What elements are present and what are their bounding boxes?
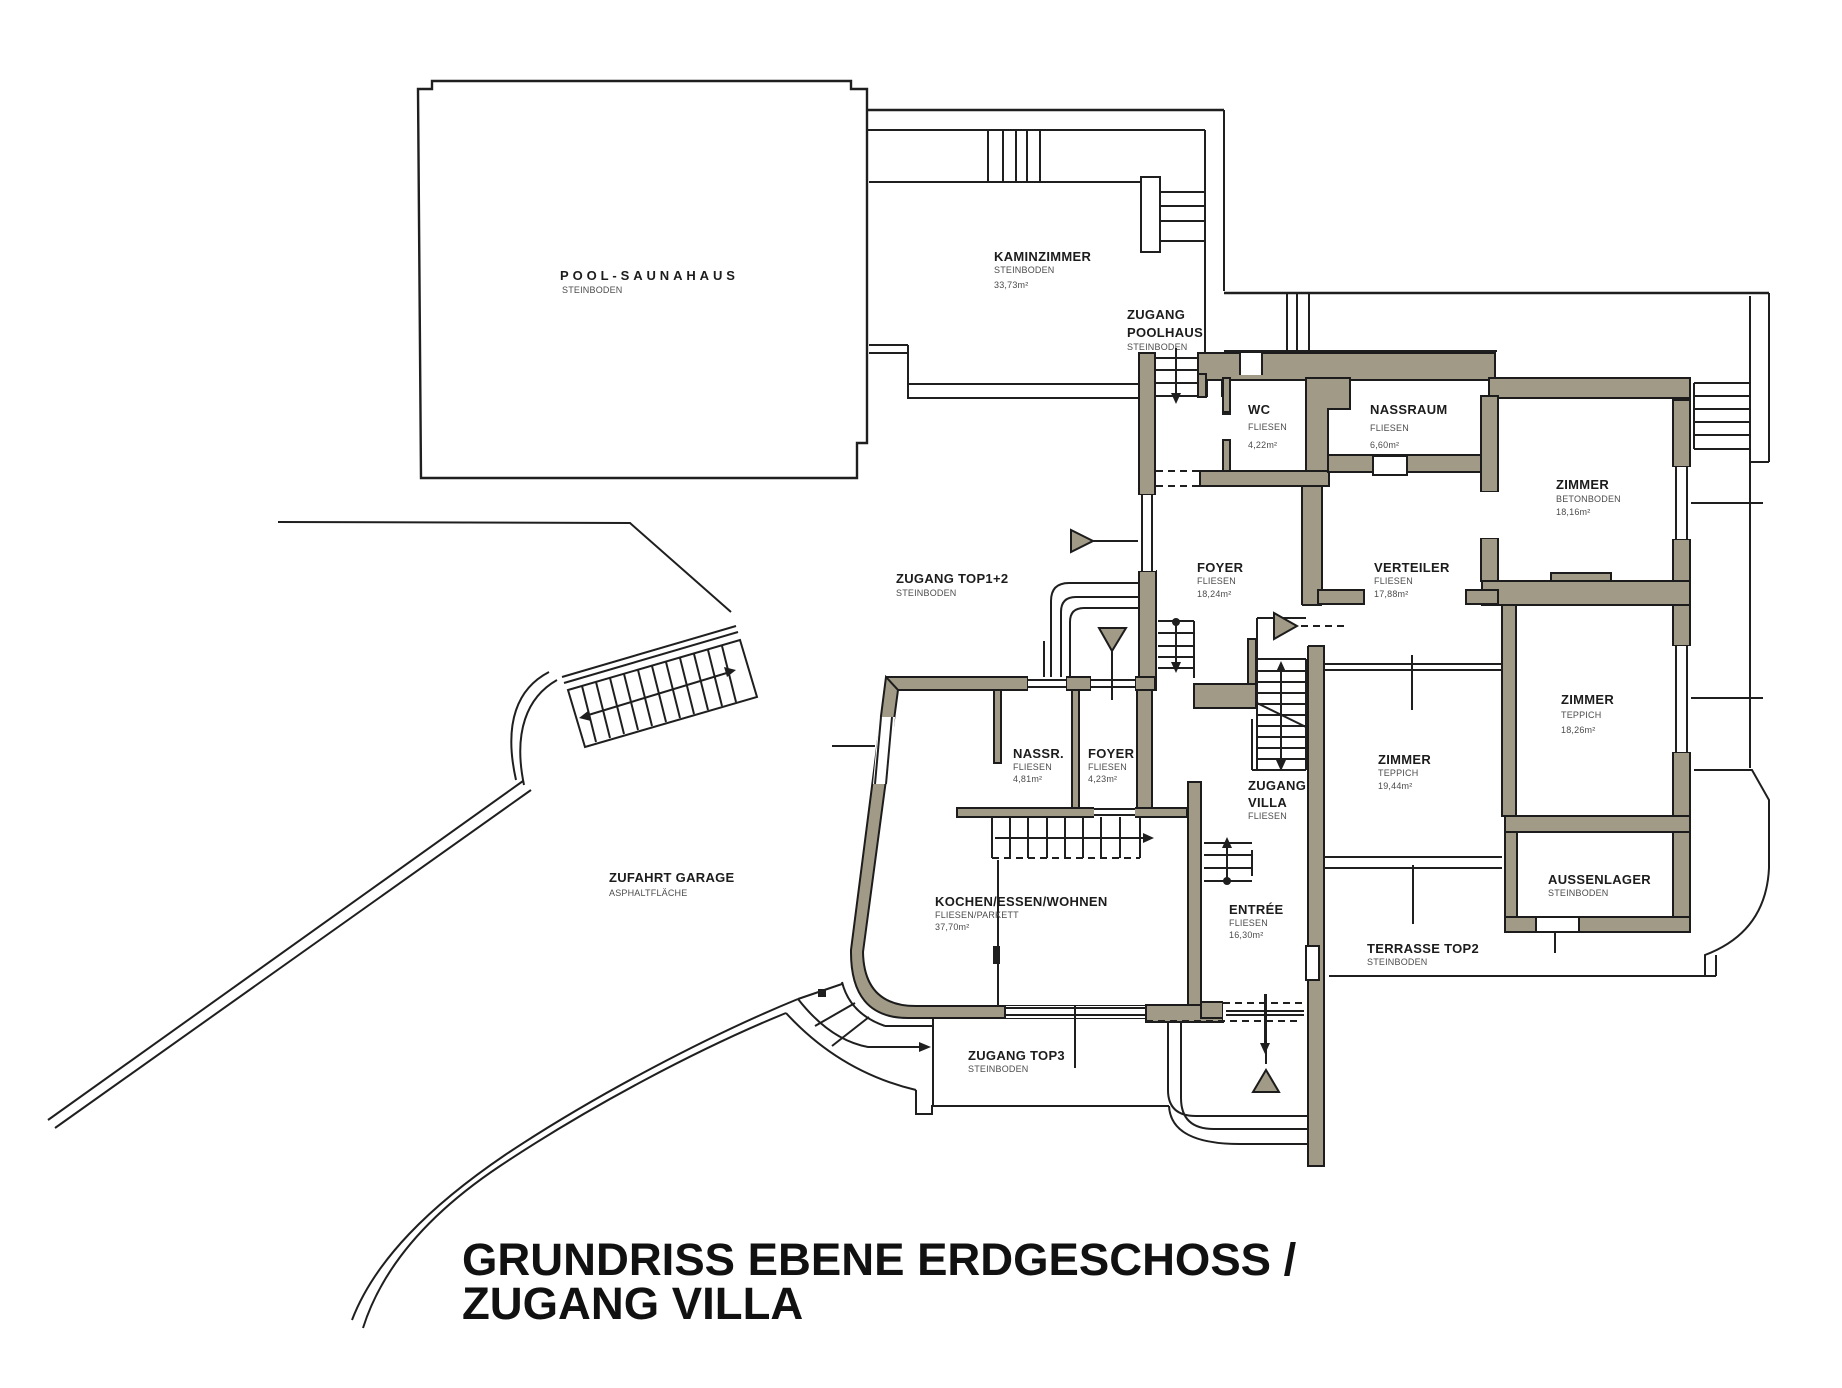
- svg-text:TERRASSE TOP2: TERRASSE TOP2: [1367, 941, 1479, 956]
- svg-text:FOYER: FOYER: [1088, 746, 1135, 761]
- svg-text:ZIMMER: ZIMMER: [1561, 692, 1614, 707]
- svg-text:STEINBODEN: STEINBODEN: [896, 588, 957, 598]
- svg-text:POOLHAUS: POOLHAUS: [1127, 325, 1203, 340]
- svg-text:18,26m²: 18,26m²: [1561, 725, 1595, 735]
- svg-text:4,22m²: 4,22m²: [1248, 440, 1277, 450]
- svg-text:WC: WC: [1248, 402, 1271, 417]
- svg-text:6,60m²: 6,60m²: [1370, 440, 1399, 450]
- svg-text:4,23m²: 4,23m²: [1088, 774, 1117, 784]
- svg-text:ZUGANG TOP3: ZUGANG TOP3: [968, 1048, 1065, 1063]
- svg-text:STEINBODEN: STEINBODEN: [968, 1064, 1029, 1074]
- svg-text:4,81m²: 4,81m²: [1013, 774, 1042, 784]
- svg-text:ASPHALTFLÄCHE: ASPHALTFLÄCHE: [609, 888, 687, 898]
- svg-text:ZUGANG: ZUGANG: [1127, 307, 1185, 322]
- svg-text:FLIESEN/PARKETT: FLIESEN/PARKETT: [935, 910, 1019, 920]
- svg-text:33,73m²: 33,73m²: [994, 280, 1028, 290]
- svg-text:FLIESEN: FLIESEN: [1013, 762, 1052, 772]
- svg-text:19,44m²: 19,44m²: [1378, 781, 1412, 791]
- svg-text:ZUFAHRT GARAGE: ZUFAHRT GARAGE: [609, 870, 735, 885]
- svg-text:FLIESEN: FLIESEN: [1088, 762, 1127, 772]
- svg-text:ZUGANG VILLA: ZUGANG VILLA: [462, 1278, 803, 1329]
- svg-text:17,88m²: 17,88m²: [1374, 589, 1408, 599]
- svg-text:FLIESEN: FLIESEN: [1248, 422, 1287, 432]
- svg-text:VILLA: VILLA: [1248, 795, 1287, 810]
- svg-text:FOYER: FOYER: [1197, 560, 1244, 575]
- svg-text:FLIESEN: FLIESEN: [1229, 918, 1268, 928]
- svg-text:TEPPICH: TEPPICH: [1378, 768, 1418, 778]
- svg-text:STEINBODEN: STEINBODEN: [1127, 342, 1188, 352]
- svg-text:18,24m²: 18,24m²: [1197, 589, 1231, 599]
- svg-text:37,70m²: 37,70m²: [935, 922, 969, 932]
- svg-text:KOCHEN/ESSEN/WOHNEN: KOCHEN/ESSEN/WOHNEN: [935, 894, 1108, 909]
- svg-text:FLIESEN: FLIESEN: [1370, 423, 1409, 433]
- svg-text:TEPPICH: TEPPICH: [1561, 710, 1601, 720]
- svg-text:ZIMMER: ZIMMER: [1378, 752, 1431, 767]
- svg-text:18,16m²: 18,16m²: [1556, 507, 1590, 517]
- svg-text:BETONBODEN: BETONBODEN: [1556, 494, 1621, 504]
- svg-text:VERTEILER: VERTEILER: [1374, 560, 1450, 575]
- svg-text:NASSR.: NASSR.: [1013, 746, 1064, 761]
- svg-text:AUSSENLAGER: AUSSENLAGER: [1548, 872, 1651, 887]
- svg-text:FLIESEN: FLIESEN: [1374, 576, 1413, 586]
- svg-text:KAMINZIMMER: KAMINZIMMER: [994, 249, 1091, 264]
- svg-text:STEINBODEN: STEINBODEN: [562, 285, 623, 295]
- svg-text:FLIESEN: FLIESEN: [1197, 576, 1236, 586]
- svg-text:STEINBODEN: STEINBODEN: [994, 265, 1055, 275]
- svg-text:ZUGANG: ZUGANG: [1248, 778, 1306, 793]
- svg-text:ENTRÉE: ENTRÉE: [1229, 902, 1284, 917]
- svg-text:16,30m²: 16,30m²: [1229, 930, 1263, 940]
- svg-text:STEINBODEN: STEINBODEN: [1367, 957, 1428, 967]
- svg-text:POOL-SAUNAHAUS: POOL-SAUNAHAUS: [560, 268, 739, 283]
- svg-text:ZIMMER: ZIMMER: [1556, 477, 1609, 492]
- svg-text:ZUGANG TOP1+2: ZUGANG TOP1+2: [896, 571, 1008, 586]
- svg-text:FLIESEN: FLIESEN: [1248, 811, 1287, 821]
- svg-text:STEINBODEN: STEINBODEN: [1548, 888, 1609, 898]
- svg-text:NASSRAUM: NASSRAUM: [1370, 402, 1448, 417]
